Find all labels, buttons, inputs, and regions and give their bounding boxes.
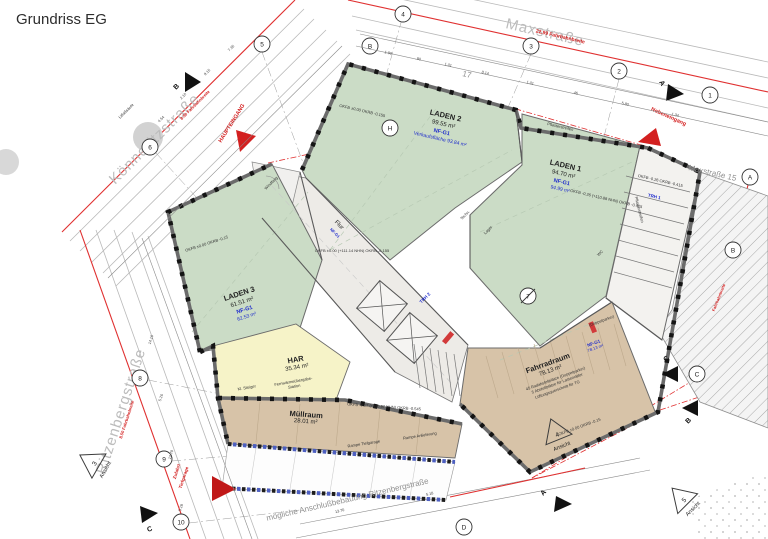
grid-9: 9 — [162, 457, 166, 464]
grid-letter-a: A — [748, 175, 753, 182]
section-b-top-label: B — [172, 83, 181, 92]
grid-4: 4 — [401, 12, 405, 19]
section-b-top-icon — [185, 72, 201, 92]
grid-8: 8 — [138, 376, 142, 383]
section-b-right-label: B — [684, 417, 693, 426]
dim: .90 — [415, 56, 421, 61]
dim: 12.70 — [168, 450, 175, 460]
dim: 1.01 — [444, 62, 452, 68]
dim: 8.14 — [481, 70, 489, 76]
litfasssaeule-label: Litfaßsäule — [117, 102, 135, 120]
section-a-top-label: A — [657, 80, 666, 88]
section-a-bottom-icon — [554, 496, 572, 512]
grid-7: 7 — [526, 294, 530, 301]
dim: 1.90 — [384, 50, 392, 56]
section-c-right-label: C — [662, 355, 671, 364]
grid-10: 10 — [177, 520, 185, 527]
grid-6: 6 — [148, 145, 152, 152]
section-a-top-icon — [666, 84, 684, 101]
dim: 1.01 — [526, 80, 534, 86]
section-c-bottom-label: C — [146, 526, 153, 534]
grid-letter-c: C — [695, 372, 700, 379]
dim: 5.80 — [621, 101, 629, 107]
section-b-right-icon — [682, 400, 698, 416]
page-title: Grundriss EG — [16, 11, 107, 28]
section-c-bottom-icon — [140, 506, 158, 523]
view-5-number: 5 — [681, 496, 689, 504]
dim: 9.15 — [203, 68, 211, 76]
section-a-bottom-label: A — [539, 489, 548, 498]
flur-level: OKFB ±0.00 (+111.14 NHN) OKRB -0.155 — [315, 248, 390, 253]
street-label-ritzenbergstrasse: Ritzenbergstraße — [93, 346, 150, 476]
dim: 5.26 — [158, 394, 164, 402]
dim: 5.18 — [178, 504, 184, 512]
grid-1: 1 — [708, 93, 712, 100]
dim: 7.35 — [227, 44, 235, 52]
dim: 13.70 — [335, 508, 345, 514]
grid-2: 2 — [617, 69, 621, 76]
grid-letter-b: B — [731, 248, 735, 255]
grid-3: 3 — [529, 44, 533, 51]
floor-plan-canvas: LADEN 2 99.55 m² NF-G1 Verkaufsfläche 93… — [0, 0, 768, 539]
dim: .46 — [572, 90, 578, 95]
floor-plan-drawing: LADEN 2 99.55 m² NF-G1 Verkaufsfläche 93… — [0, 0, 768, 539]
grid-letter-h: H — [388, 126, 393, 133]
tree-circle — [0, 149, 19, 175]
street-label-konneritzstrasse: Könneritzstraße — [106, 90, 204, 188]
grid-5: 5 — [260, 42, 264, 49]
techn-label: Techn. — [459, 209, 471, 221]
grid-letter-d: D — [462, 525, 467, 532]
lot-number: 17 — [462, 69, 473, 80]
side-entrance-arrow-icon — [638, 128, 661, 146]
